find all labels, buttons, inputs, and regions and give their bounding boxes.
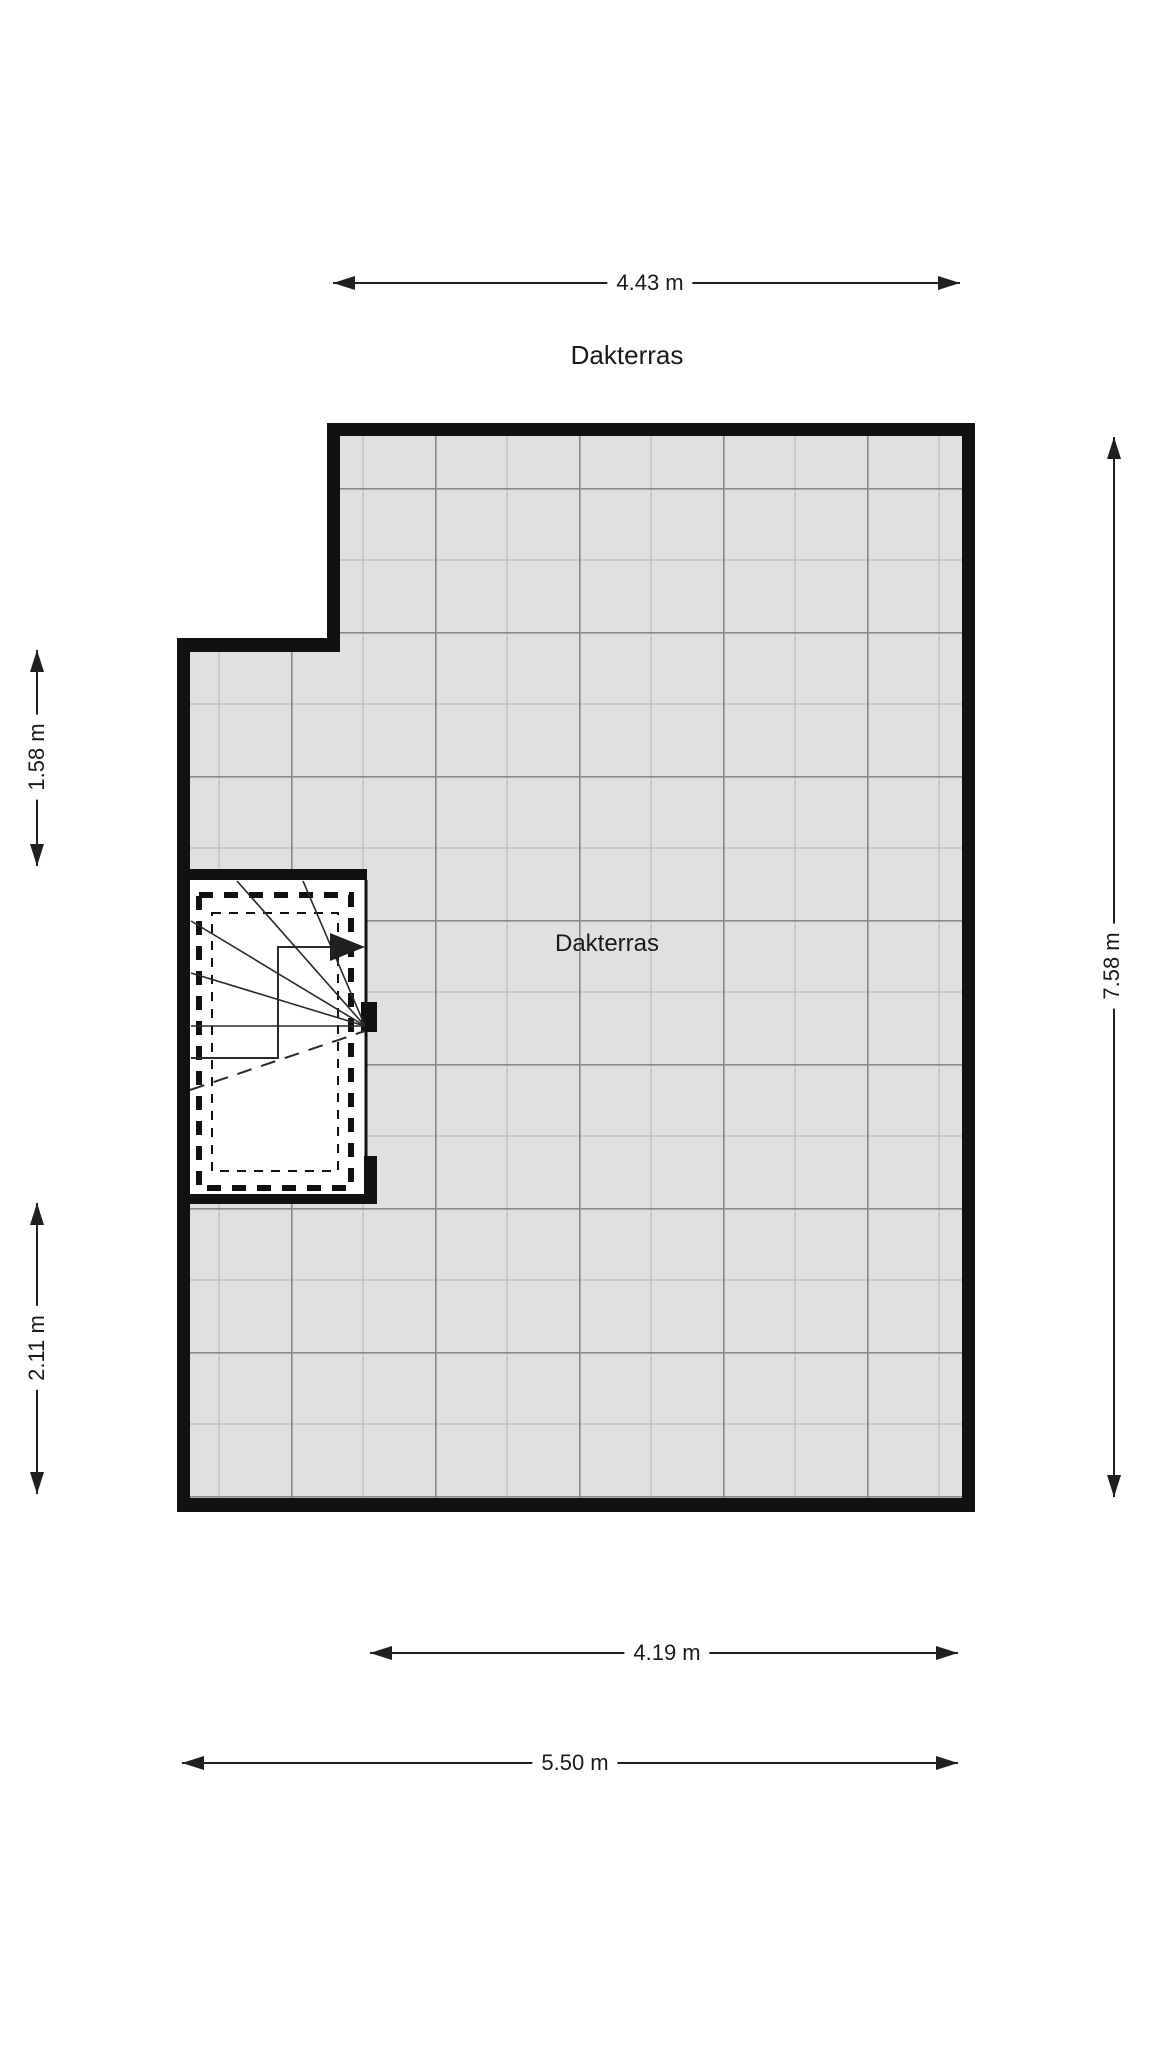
- stairwell-wall-right: [365, 880, 368, 1196]
- dimension-label-left-lower: 2.11 m: [23, 1306, 51, 1390]
- dimension-label-bottom-outer: 5.50 m: [532, 1749, 617, 1777]
- stairwell: [184, 869, 377, 1204]
- dimension-label-left-upper: 1.58 m: [23, 714, 51, 799]
- stairwell-wall-bottom: [184, 1194, 377, 1204]
- floor-plan-svg: [0, 0, 1152, 2048]
- stairwell-wall-top: [190, 869, 367, 880]
- dimension-label-top: 4.43 m: [607, 269, 692, 297]
- plan-title: Dakterras: [571, 342, 684, 368]
- room-label: Dakterras: [555, 932, 659, 956]
- stairwell-wall-stub: [361, 1002, 377, 1032]
- dimension-label-right: 7.58 m: [1098, 923, 1126, 1008]
- dimension-label-bottom-inner: 4.19 m: [624, 1639, 709, 1667]
- stairwell-wall-right-lower: [364, 1156, 377, 1204]
- floor-plan-canvas: Dakterras Dakterras 4.43 m 1.58 m 2.11 m…: [0, 0, 1152, 2048]
